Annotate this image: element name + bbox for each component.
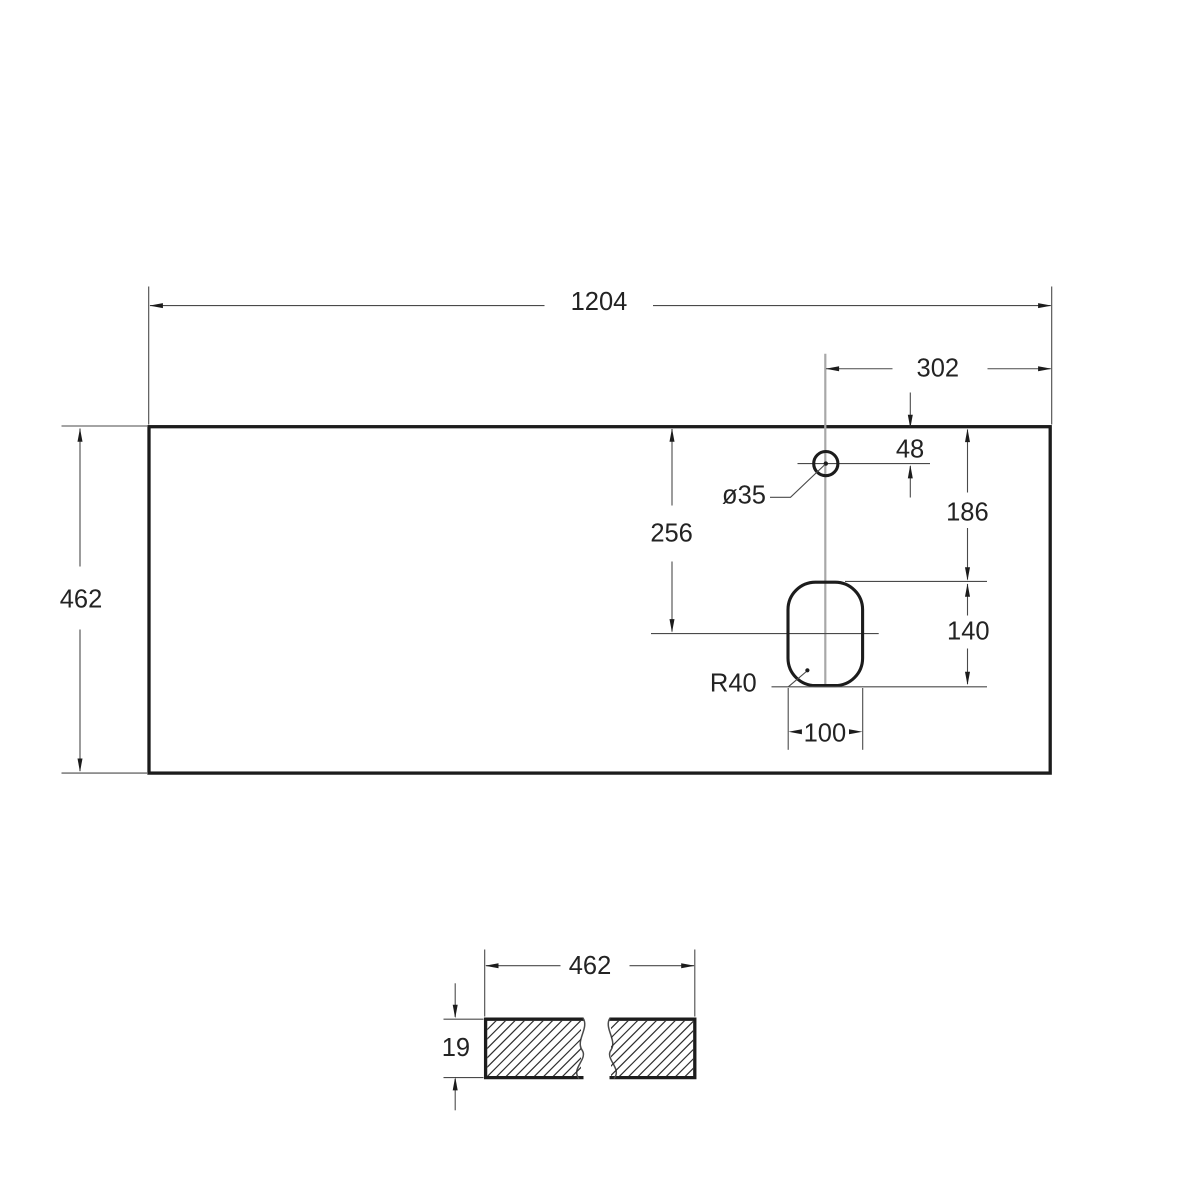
svg-text:R40: R40 xyxy=(710,670,757,698)
svg-text:ø35: ø35 xyxy=(722,482,766,510)
svg-text:462: 462 xyxy=(60,585,103,613)
svg-text:19: 19 xyxy=(442,1034,470,1062)
svg-text:140: 140 xyxy=(947,618,990,646)
svg-text:462: 462 xyxy=(569,952,612,980)
svg-text:302: 302 xyxy=(917,354,960,382)
svg-text:100: 100 xyxy=(804,719,847,747)
svg-text:186: 186 xyxy=(946,498,989,526)
svg-text:48: 48 xyxy=(896,436,924,464)
svg-text:256: 256 xyxy=(650,520,693,548)
svg-text:1204: 1204 xyxy=(571,288,628,316)
